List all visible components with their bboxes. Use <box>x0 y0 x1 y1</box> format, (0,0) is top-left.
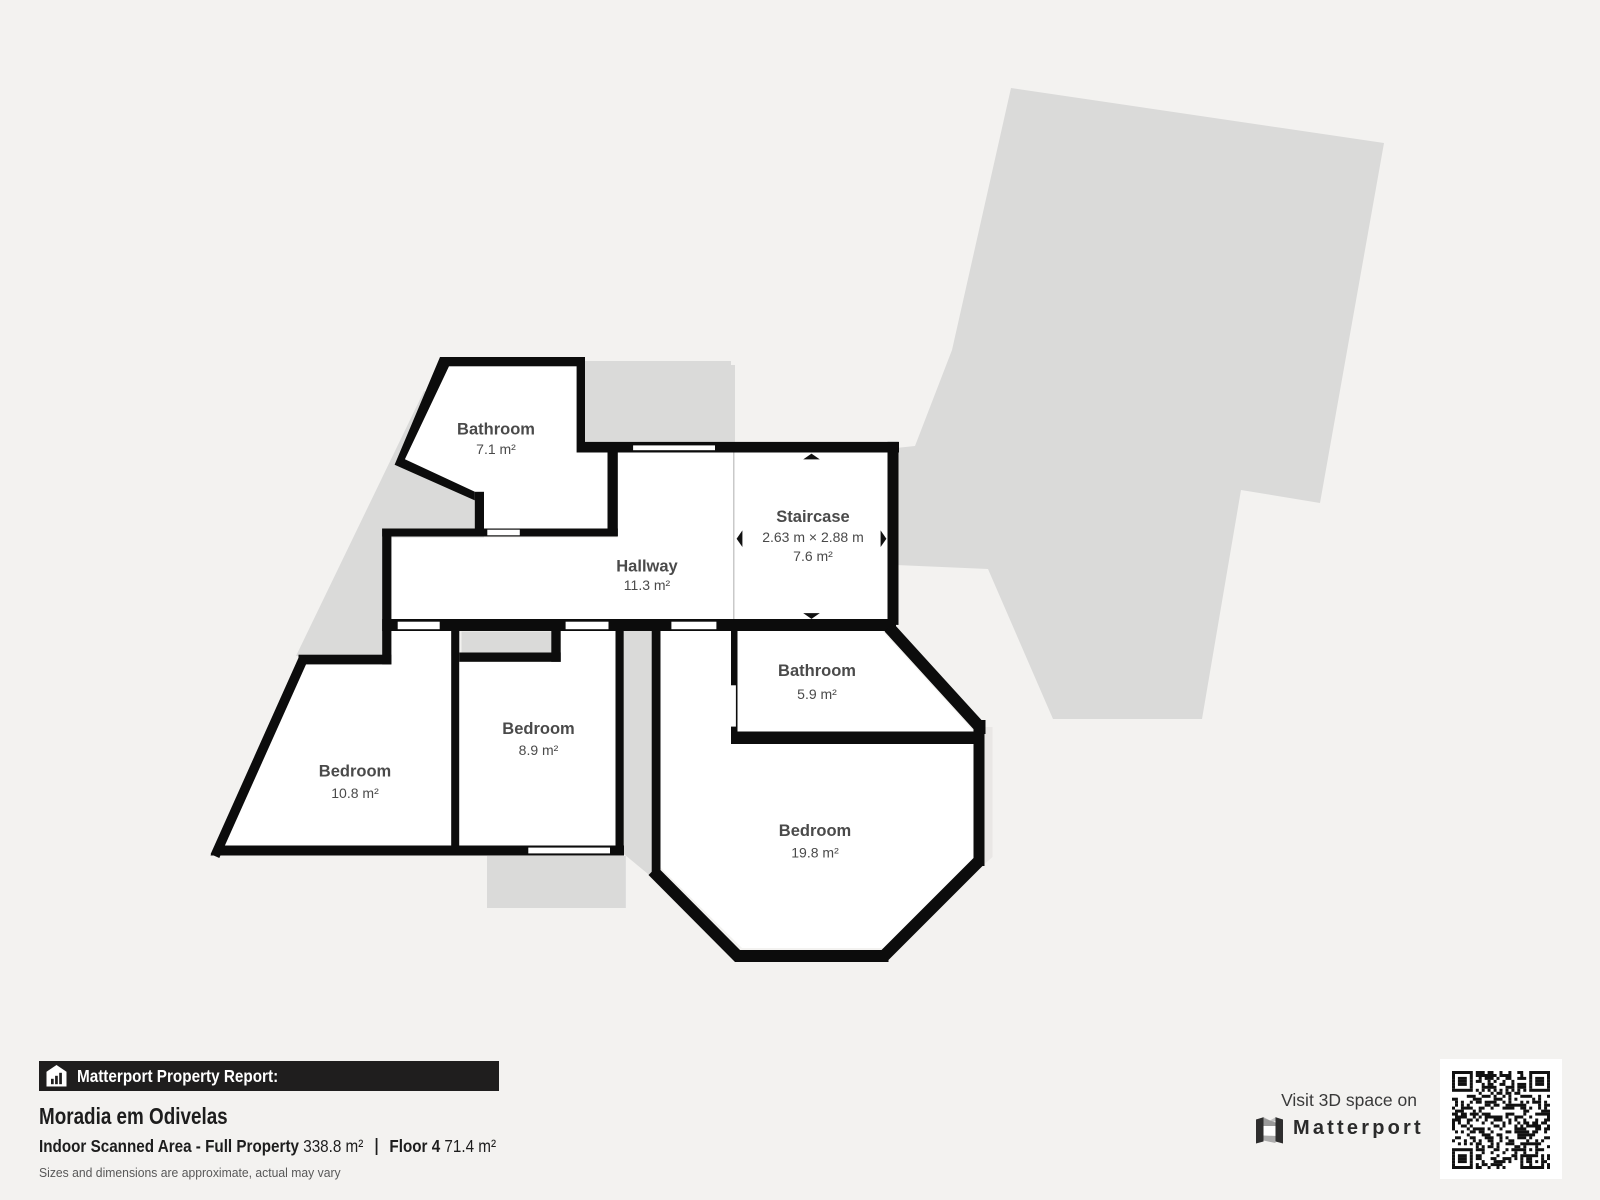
svg-text:Bedroom: Bedroom <box>502 720 574 738</box>
svg-text:Bathroom: Bathroom <box>457 421 535 439</box>
svg-text:5.9 m²: 5.9 m² <box>797 686 837 702</box>
svg-text:7.6 m²: 7.6 m² <box>793 548 833 564</box>
svg-text:Staircase: Staircase <box>776 508 849 526</box>
svg-text:Bedroom: Bedroom <box>319 763 391 781</box>
svg-text:10.8 m²: 10.8 m² <box>331 785 379 801</box>
svg-text:11.3 m²: 11.3 m² <box>624 577 671 593</box>
svg-text:Bathroom: Bathroom <box>778 662 856 680</box>
svg-text:Bedroom: Bedroom <box>779 822 851 840</box>
svg-text:19.8 m²: 19.8 m² <box>791 845 839 861</box>
svg-text:8.9 m²: 8.9 m² <box>519 742 559 758</box>
svg-text:Hallway: Hallway <box>616 558 678 576</box>
svg-text:7.1 m²: 7.1 m² <box>476 441 516 457</box>
svg-text:2.63 m × 2.88 m: 2.63 m × 2.88 m <box>762 529 864 545</box>
